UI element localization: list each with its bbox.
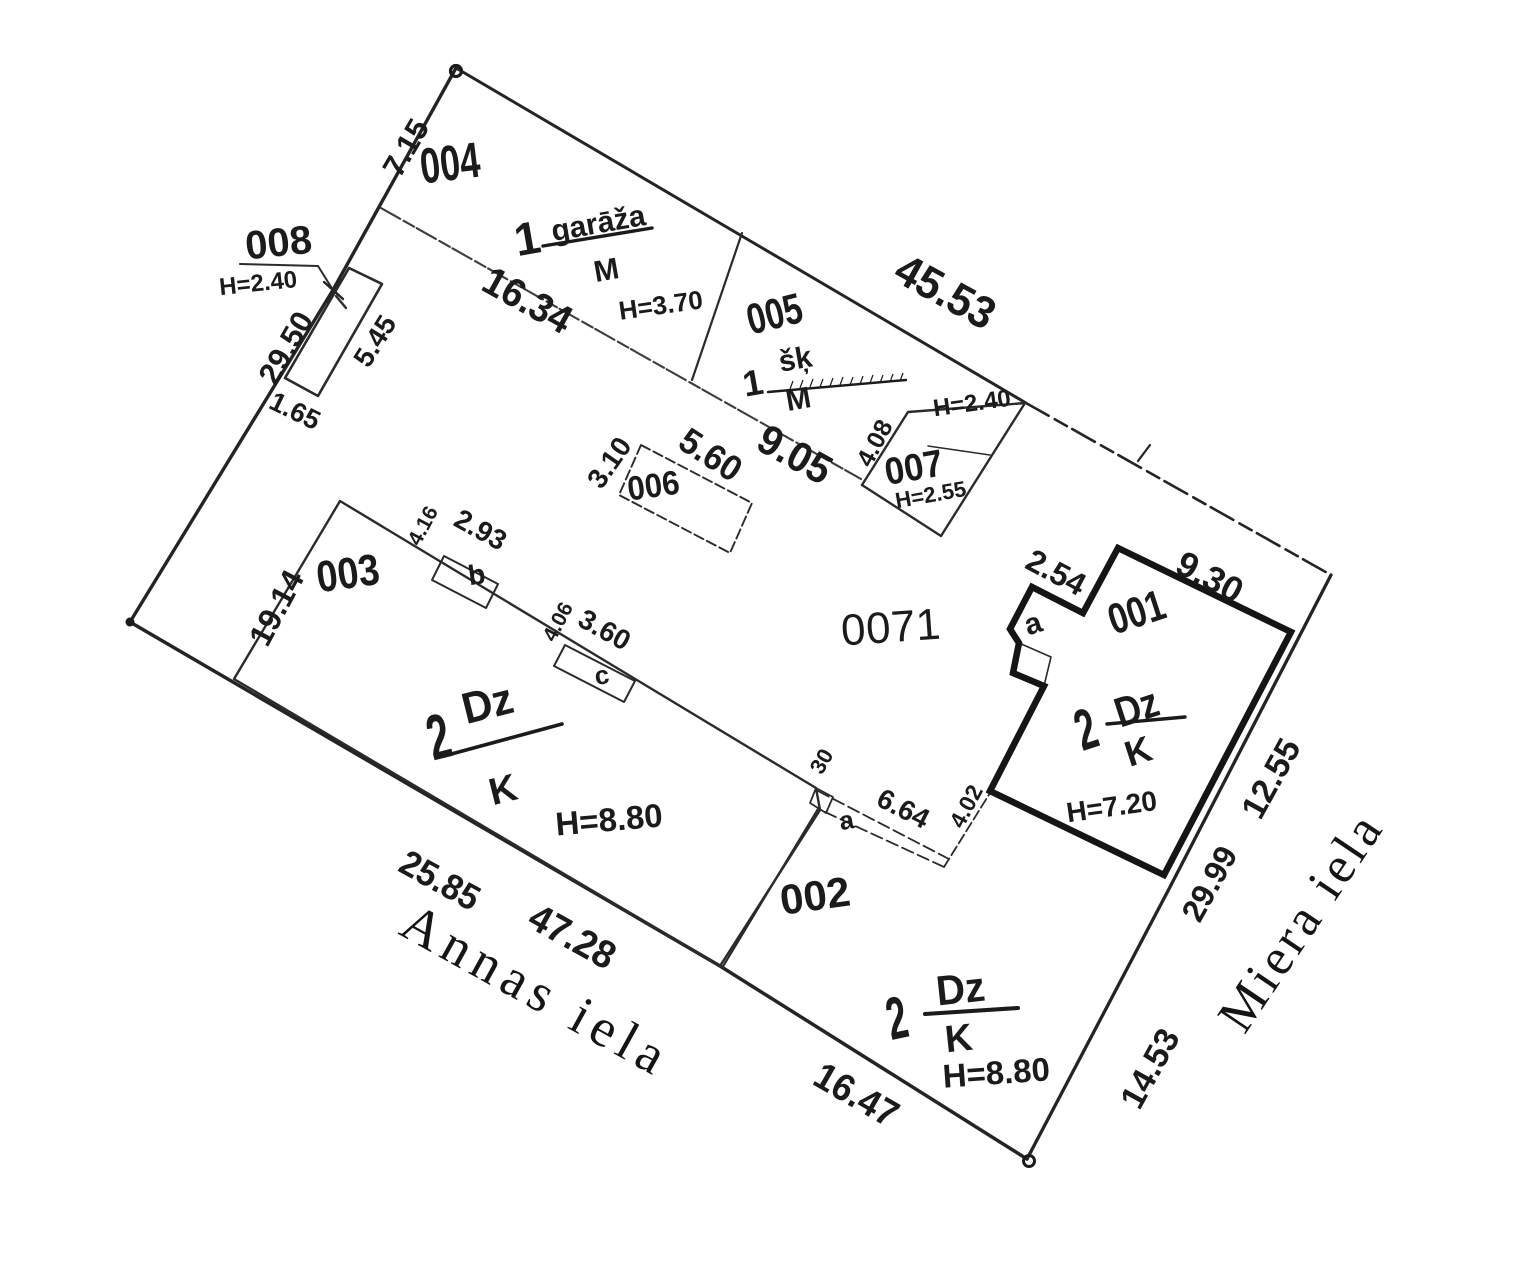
svg-text:K: K xyxy=(943,1017,975,1062)
svg-text:šķ: šķ xyxy=(776,340,815,378)
svg-text:002: 002 xyxy=(777,867,853,923)
svg-text:006: 006 xyxy=(625,462,682,507)
svg-text:Dz: Dz xyxy=(934,963,987,1015)
svg-text:003: 003 xyxy=(313,544,382,602)
svg-text:H=8.80: H=8.80 xyxy=(941,1050,1051,1094)
svg-text:008: 008 xyxy=(243,218,314,269)
svg-text:0071: 0071 xyxy=(839,600,942,656)
